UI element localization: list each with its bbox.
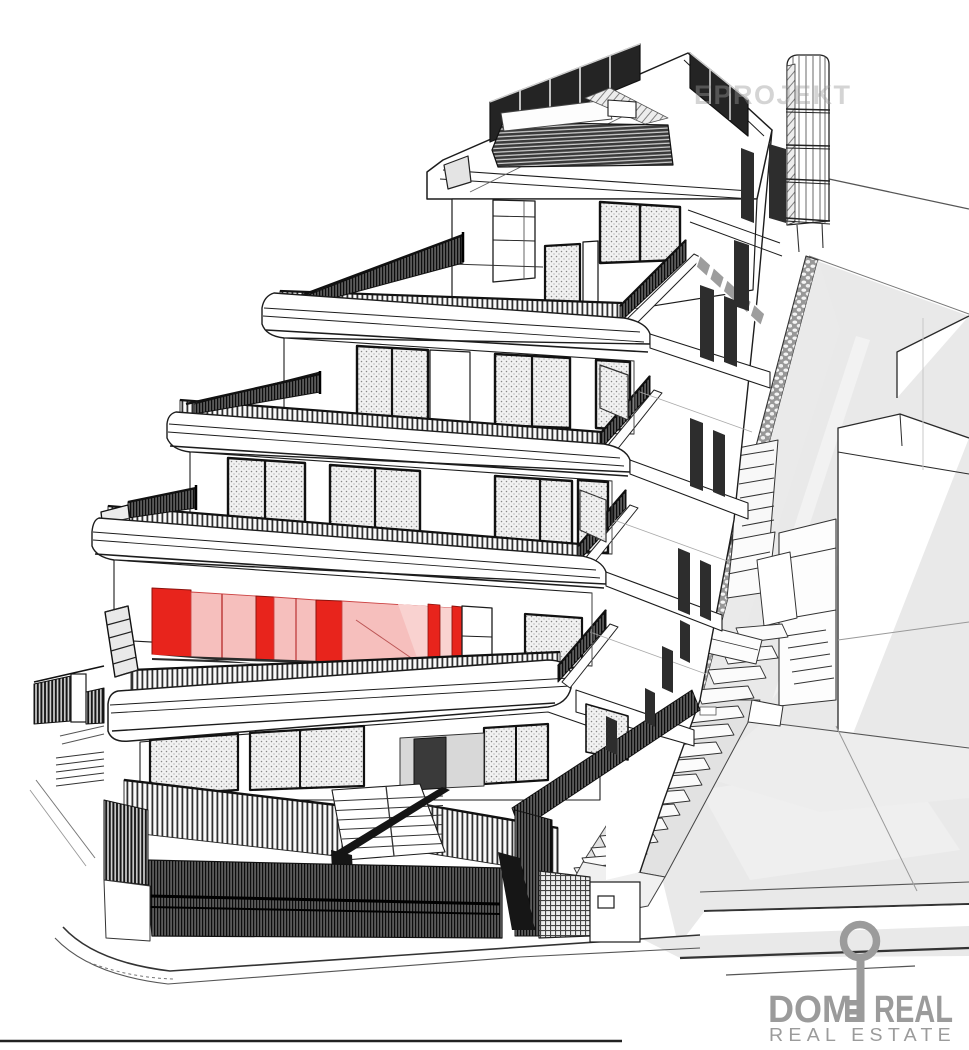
svg-text:REAL ESTATE: REAL ESTATE [769, 1024, 956, 1045]
svg-text:EPROJEKT: EPROJEKT [694, 80, 852, 110]
